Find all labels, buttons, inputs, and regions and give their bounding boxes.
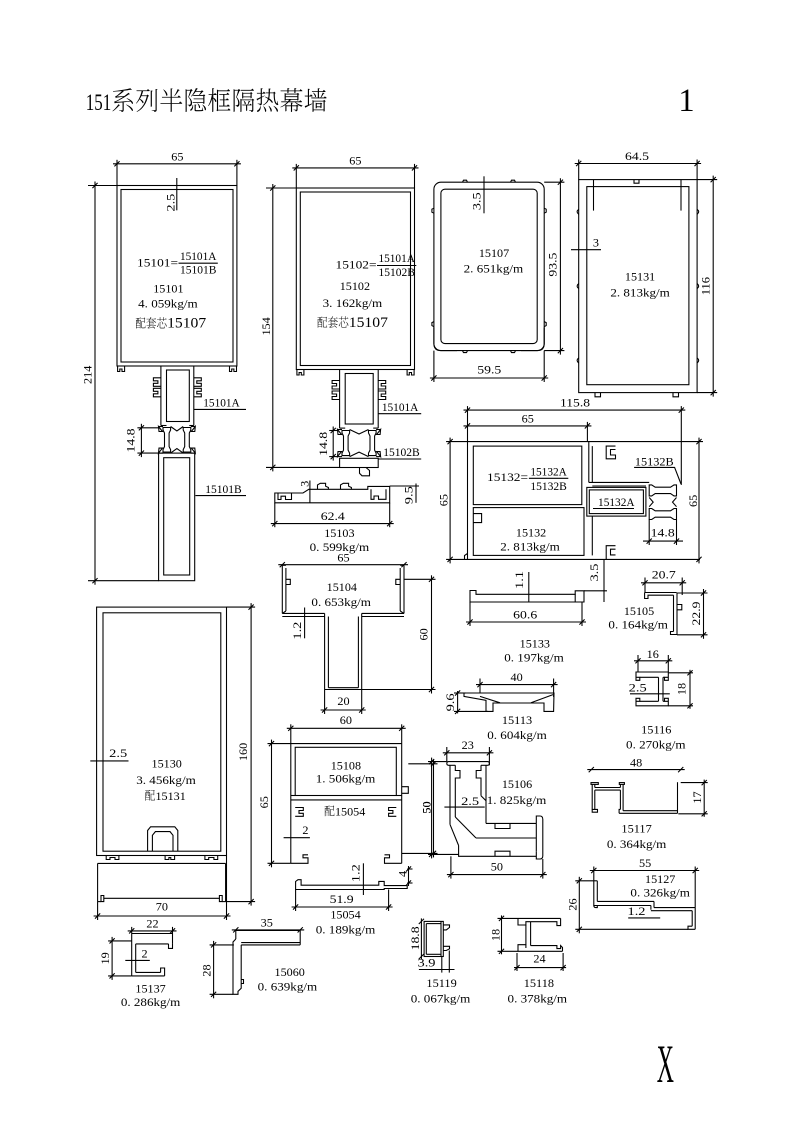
svg-text:26: 26 (565, 898, 579, 910)
svg-text:65: 65 (436, 494, 450, 506)
svg-text:15132=: 15132= (487, 470, 528, 484)
svg-text:0. 364kg/m: 0. 364kg/m (607, 837, 667, 851)
svg-text:0. 067kg/m: 0. 067kg/m (411, 992, 471, 1006)
svg-text:151: 151 (86, 90, 111, 116)
svg-text:15106: 15106 (502, 777, 532, 791)
svg-text:X: X (657, 1034, 674, 1094)
svg-text:15131: 15131 (625, 270, 655, 284)
svg-text:48: 48 (630, 755, 642, 769)
svg-text:2.5: 2.5 (164, 194, 178, 212)
svg-text:15133: 15133 (520, 636, 550, 650)
svg-text:20.7: 20.7 (652, 568, 676, 582)
svg-text:15130: 15130 (152, 757, 182, 771)
svg-text:3. 456kg/m: 3. 456kg/m (136, 773, 196, 787)
svg-text:15132B: 15132B (635, 455, 674, 469)
svg-text:14.8: 14.8 (123, 428, 137, 452)
svg-text:2: 2 (302, 823, 308, 837)
svg-text:60: 60 (340, 713, 352, 727)
svg-text:15107: 15107 (167, 316, 207, 332)
svg-text:1: 1 (678, 83, 694, 119)
svg-text:15132A: 15132A (598, 495, 635, 509)
svg-text:9.5: 9.5 (401, 486, 415, 504)
svg-text:15108: 15108 (331, 758, 361, 772)
svg-text:1.2: 1.2 (628, 904, 646, 918)
svg-text:19: 19 (98, 952, 112, 964)
svg-text:17: 17 (690, 791, 704, 803)
svg-text:50: 50 (420, 801, 434, 813)
svg-text:22.9: 22.9 (689, 601, 703, 625)
svg-text:3. 162kg/m: 3. 162kg/m (323, 296, 383, 310)
svg-text:15101=: 15101= (137, 255, 178, 269)
svg-text:15105: 15105 (624, 604, 654, 618)
svg-text:15060: 15060 (275, 965, 305, 979)
svg-text:15101A: 15101A (203, 396, 240, 410)
svg-text:2. 813kg/m: 2. 813kg/m (500, 540, 560, 554)
svg-text:65: 65 (349, 154, 361, 168)
svg-text:15113: 15113 (502, 713, 532, 727)
svg-text:1. 825kg/m: 1. 825kg/m (487, 793, 547, 807)
svg-text:15131: 15131 (156, 789, 186, 803)
svg-text:15104: 15104 (327, 580, 357, 594)
svg-text:3: 3 (297, 481, 311, 487)
svg-text:18: 18 (488, 929, 502, 941)
svg-text:15101A: 15101A (382, 400, 419, 414)
svg-text:28: 28 (199, 964, 213, 976)
svg-text:0. 604kg/m: 0. 604kg/m (487, 728, 547, 742)
svg-text:4. 059kg/m: 4. 059kg/m (138, 297, 198, 311)
svg-text:40: 40 (511, 670, 523, 684)
svg-text:14.8: 14.8 (651, 526, 675, 540)
svg-text:93.5: 93.5 (546, 253, 560, 277)
svg-text:62.4: 62.4 (321, 509, 345, 523)
svg-text:15117: 15117 (621, 822, 651, 836)
svg-text:15101A: 15101A (378, 251, 415, 265)
svg-text:15102: 15102 (340, 279, 370, 293)
svg-text:15101B: 15101B (205, 482, 242, 496)
svg-text:1. 506kg/m: 1. 506kg/m (316, 772, 376, 786)
svg-text:160: 160 (236, 743, 250, 761)
svg-text:15102B: 15102B (383, 445, 420, 459)
svg-text:2. 813kg/m: 2. 813kg/m (610, 286, 670, 300)
svg-text:15118: 15118 (524, 976, 554, 990)
svg-text:2: 2 (142, 947, 148, 961)
svg-text:35: 35 (261, 915, 273, 929)
svg-text:65: 65 (171, 150, 183, 164)
svg-text:0. 189kg/m: 0. 189kg/m (316, 923, 376, 937)
svg-text:65: 65 (337, 551, 349, 565)
svg-text:2.5: 2.5 (461, 794, 479, 808)
svg-text:3.9: 3.9 (418, 956, 436, 970)
svg-text:18: 18 (675, 683, 689, 695)
svg-text:0. 653kg/m: 0. 653kg/m (311, 595, 371, 609)
svg-text:15102B: 15102B (378, 265, 415, 279)
svg-text:15054: 15054 (335, 804, 365, 818)
svg-text:0. 197kg/m: 0. 197kg/m (504, 650, 564, 664)
svg-text:3.5: 3.5 (587, 563, 601, 581)
svg-text:51.9: 51.9 (330, 892, 354, 906)
svg-text:115.8: 115.8 (560, 396, 590, 410)
svg-text:50: 50 (491, 860, 503, 874)
svg-text:0. 639kg/m: 0. 639kg/m (258, 980, 318, 994)
svg-text:1.2: 1.2 (349, 864, 363, 882)
svg-text:15132B: 15132B (530, 479, 567, 493)
svg-text:0. 326kg/m: 0. 326kg/m (630, 886, 690, 900)
svg-text:214: 214 (80, 366, 94, 384)
svg-text:3.5: 3.5 (470, 192, 484, 210)
svg-text:15107: 15107 (349, 315, 389, 331)
svg-text:65: 65 (686, 495, 700, 507)
svg-text:70: 70 (156, 900, 168, 914)
svg-text:15137: 15137 (135, 982, 165, 996)
svg-text:15107: 15107 (479, 246, 509, 260)
svg-text:0. 286kg/m: 0. 286kg/m (121, 995, 181, 1009)
svg-text:15101B: 15101B (180, 263, 217, 277)
svg-text:15101A: 15101A (180, 249, 217, 263)
svg-text:23: 23 (462, 738, 474, 752)
svg-text:15103: 15103 (324, 526, 354, 540)
svg-text:64.5: 64.5 (625, 149, 649, 163)
svg-text:65: 65 (257, 796, 271, 808)
svg-text:15132A: 15132A (530, 465, 567, 479)
svg-text:4: 4 (396, 871, 410, 877)
svg-text:0. 164kg/m: 0. 164kg/m (608, 618, 668, 632)
svg-text:15101: 15101 (153, 281, 183, 295)
svg-text:9.6: 9.6 (443, 693, 457, 711)
svg-text:16: 16 (647, 647, 659, 661)
svg-text:15132: 15132 (516, 525, 546, 539)
svg-text:116: 116 (698, 277, 712, 295)
svg-text:1.1: 1.1 (512, 571, 526, 589)
svg-text:18.8: 18.8 (408, 926, 422, 950)
svg-text:55: 55 (639, 856, 651, 870)
svg-text:0. 378kg/m: 0. 378kg/m (508, 992, 568, 1006)
svg-text:20: 20 (337, 694, 349, 708)
svg-text:22: 22 (146, 916, 158, 930)
svg-text:2. 651kg/m: 2. 651kg/m (464, 261, 524, 275)
svg-text:15102=: 15102= (336, 258, 377, 272)
svg-text:2.5: 2.5 (629, 681, 647, 695)
svg-text:2.5: 2.5 (109, 746, 127, 760)
svg-text:1.2: 1.2 (290, 622, 304, 640)
svg-text:59.5: 59.5 (477, 363, 501, 377)
svg-text:15054: 15054 (330, 908, 360, 922)
svg-text:15119: 15119 (426, 976, 456, 990)
svg-text:154: 154 (259, 317, 273, 335)
svg-text:60: 60 (417, 628, 431, 640)
svg-text:3: 3 (593, 236, 599, 250)
svg-text:65: 65 (522, 412, 534, 426)
svg-text:14.8: 14.8 (316, 432, 330, 456)
svg-text:60.6: 60.6 (513, 608, 537, 622)
svg-text:0. 270kg/m: 0. 270kg/m (626, 737, 686, 751)
svg-text:15127: 15127 (645, 872, 675, 886)
svg-text:24: 24 (533, 952, 545, 966)
svg-text:15116: 15116 (641, 723, 671, 737)
